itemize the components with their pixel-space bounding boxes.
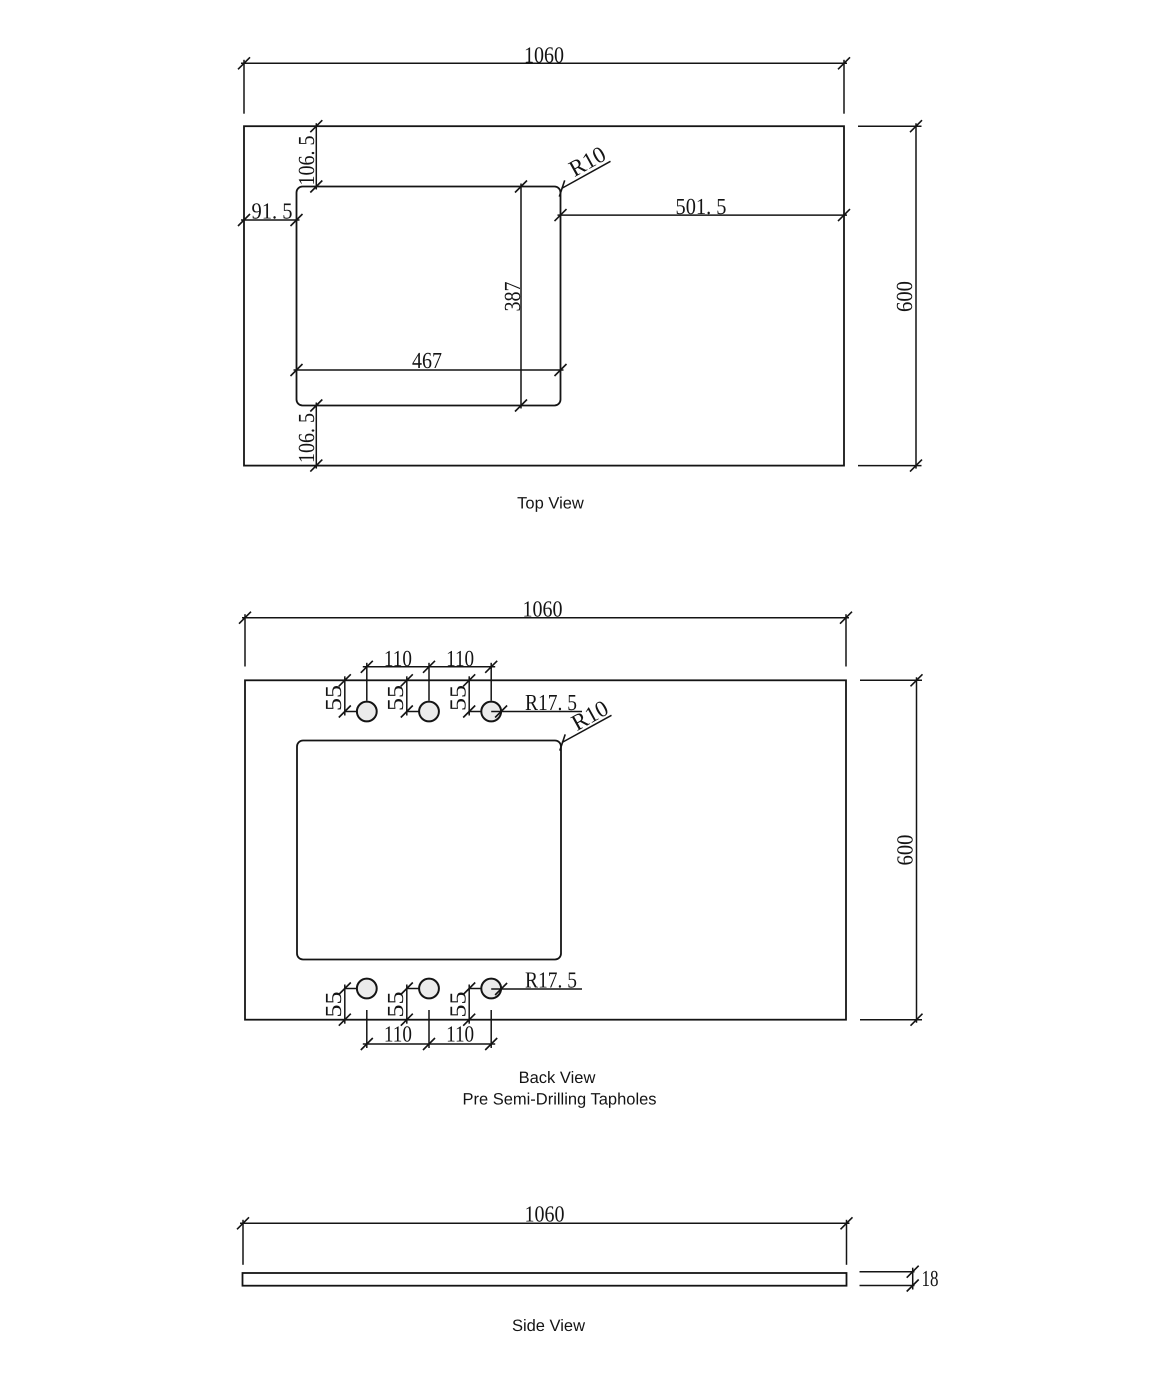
svg-text:55: 55 — [445, 992, 470, 1018]
svg-text:600: 600 — [893, 835, 918, 866]
svg-text:R17. 5: R17. 5 — [525, 690, 577, 715]
svg-text:110: 110 — [384, 646, 412, 671]
svg-text:18: 18 — [922, 1266, 939, 1291]
svg-text:55: 55 — [321, 685, 346, 711]
svg-text:55: 55 — [383, 685, 408, 711]
svg-text:55: 55 — [445, 685, 470, 711]
svg-text:1060: 1060 — [523, 597, 563, 622]
svg-text:106. 5: 106. 5 — [294, 413, 319, 463]
svg-text:91. 5: 91. 5 — [252, 199, 293, 224]
svg-text:1060: 1060 — [524, 42, 564, 67]
svg-text:106. 5: 106. 5 — [294, 136, 319, 186]
svg-text:55: 55 — [383, 992, 408, 1018]
svg-text:110: 110 — [384, 1021, 412, 1046]
svg-text:1060: 1060 — [525, 1202, 565, 1227]
svg-text:110: 110 — [446, 1021, 474, 1046]
svg-text:Side View: Side View — [512, 1317, 585, 1335]
svg-text:387: 387 — [500, 282, 525, 312]
svg-text:R17. 5: R17. 5 — [525, 967, 577, 992]
svg-text:Pre Semi-Drilling Tapholes: Pre Semi-Drilling Tapholes — [462, 1091, 656, 1109]
svg-text:467: 467 — [412, 348, 442, 373]
svg-text:110: 110 — [446, 646, 474, 671]
svg-text:Top View: Top View — [517, 495, 584, 513]
svg-text:55: 55 — [321, 992, 346, 1018]
svg-text:600: 600 — [892, 281, 917, 312]
svg-text:501. 5: 501. 5 — [676, 194, 727, 219]
svg-text:Back View: Back View — [519, 1069, 596, 1087]
